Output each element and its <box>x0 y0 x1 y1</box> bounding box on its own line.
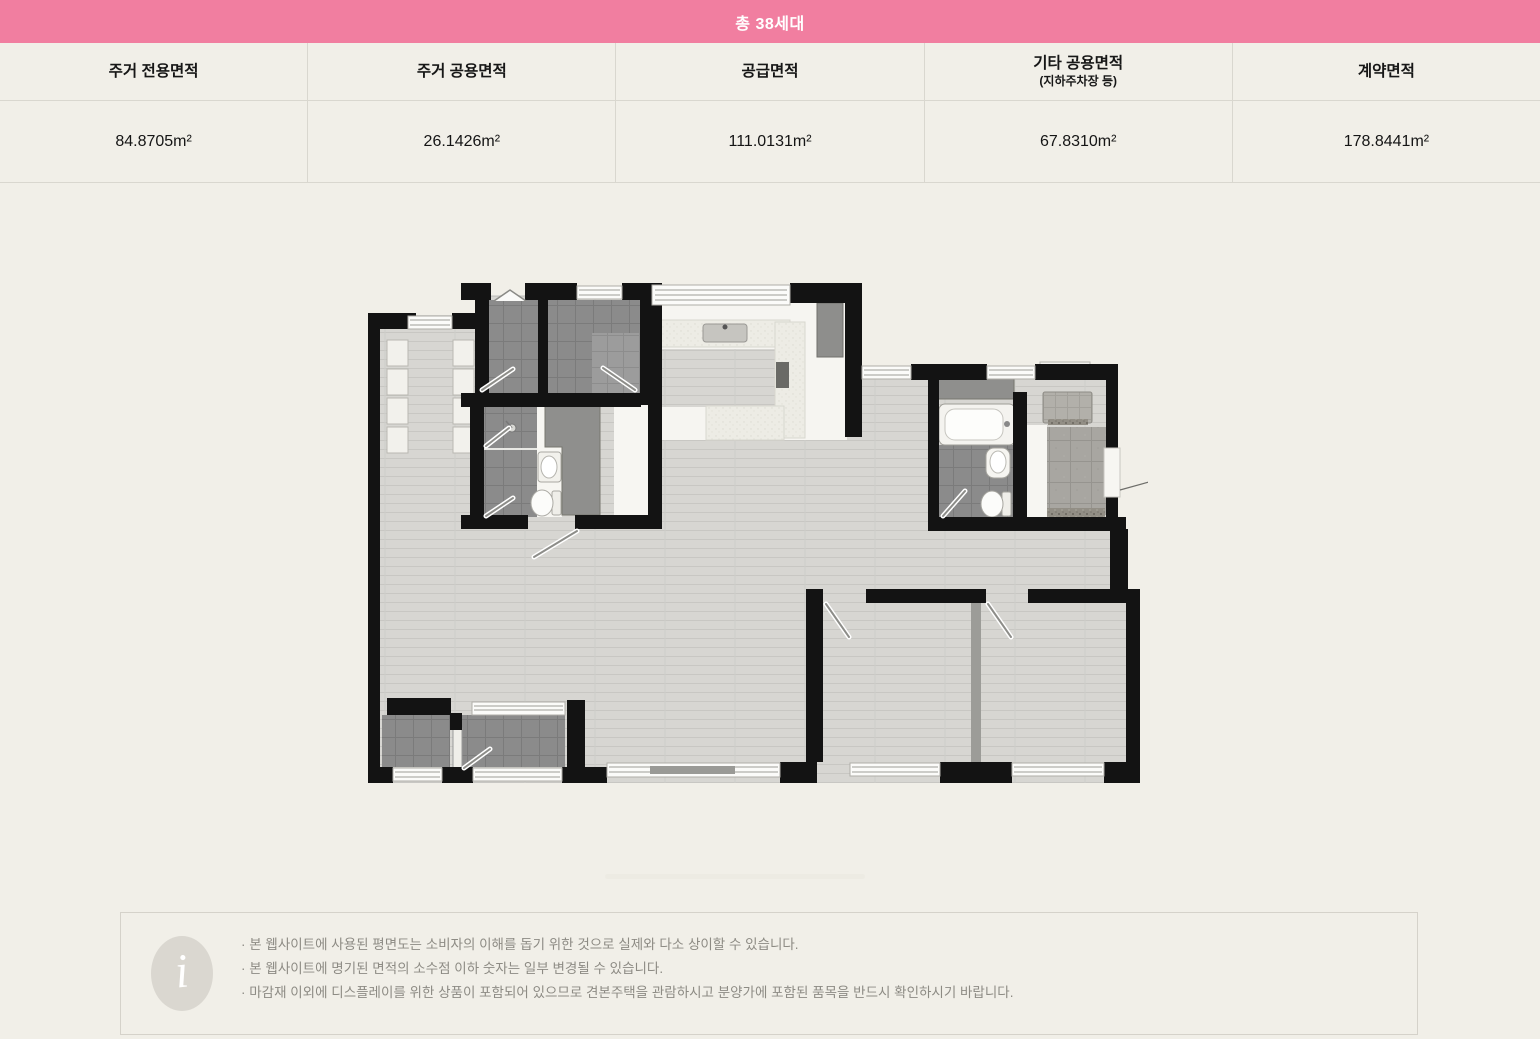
col-value: 67.8310m² <box>925 101 1232 182</box>
col-header: 계약면적 <box>1358 63 1415 81</box>
cooktop-icon <box>776 362 789 388</box>
hallway <box>614 405 648 517</box>
bathtub-icon <box>939 404 1015 445</box>
col-value: 84.8705m² <box>0 101 307 182</box>
sink-icon <box>538 452 561 482</box>
area-table: 주거 전용면적 84.8705m² 주거 공용면적 26.1426m² 공급면적… <box>0 43 1540 183</box>
total-units-label: 총 38세대 <box>735 10 804 34</box>
col-header: 기타 공용면적 <box>1033 55 1123 73</box>
shoe-cabinet <box>1043 392 1092 423</box>
col-value: 26.1426m² <box>308 101 615 182</box>
total-units-banner: 총 38세대 <box>0 0 1540 43</box>
toilet-icon <box>981 491 1011 517</box>
floorplan <box>368 281 1148 785</box>
page: 총 38세대 주거 전용면적 84.8705m² 주거 공용면적 26.1426… <box>0 0 1540 1039</box>
notice-lines: · 본 웹사이트에 사용된 평면도는 소비자의 이해를 돕기 위한 것으로 실제… <box>241 933 1013 1005</box>
notice-box: i · 본 웹사이트에 사용된 평면도는 소비자의 이해를 돕기 위한 것으로 … <box>120 912 1418 1035</box>
refrigerator-icon <box>817 303 843 357</box>
col-header: 주거 전용면적 <box>109 63 199 81</box>
area-col-common: 주거 공용면적 26.1426m² <box>308 43 616 182</box>
notice-line: · 본 웹사이트에 사용된 평면도는 소비자의 이해를 돕기 위한 것으로 실제… <box>241 933 1013 957</box>
notice-line: · 본 웹사이트에 명기된 면적의 소수점 이하 숫자는 일부 변경될 수 있습… <box>241 957 1013 981</box>
area-col-contract: 계약면적 178.8441m² <box>1233 43 1540 182</box>
info-icon: i <box>151 936 213 1011</box>
floorplan-shadow <box>605 874 865 879</box>
col-value: 111.0131m² <box>616 101 923 182</box>
area-col-supply: 공급면적 111.0131m² <box>616 43 924 182</box>
col-header: 공급면적 <box>741 63 798 81</box>
bathroom-right <box>938 378 1015 519</box>
floorplan-svg <box>368 281 1148 785</box>
col-header: 주거 공용면적 <box>417 63 507 81</box>
area-col-exclusive: 주거 전용면적 84.8705m² <box>0 43 308 182</box>
sink-icon <box>986 448 1010 478</box>
kitchen-sink-icon <box>703 324 747 342</box>
kitchen <box>645 300 847 440</box>
col-subheader: (지하주차장 등) <box>1039 75 1117 89</box>
entry-door-threshold <box>1104 448 1120 497</box>
area-col-other-common: 기타 공용면적 (지하주차장 등) 67.8310m² <box>925 43 1233 182</box>
col-value: 178.8441m² <box>1233 101 1540 182</box>
toilet-icon <box>531 490 561 516</box>
partition-wall <box>971 603 981 762</box>
notice-line: · 마감재 이외에 디스플레이를 위한 상품이 포함되어 있으므로 견본주택을 … <box>241 981 1013 1005</box>
